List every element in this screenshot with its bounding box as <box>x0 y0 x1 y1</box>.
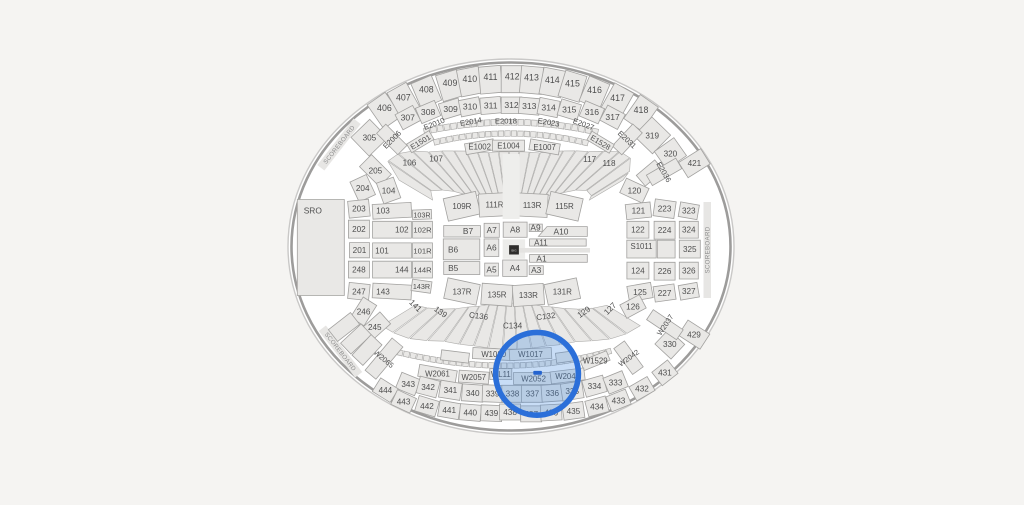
svg-text:435: 435 <box>567 407 581 416</box>
svg-text:103: 103 <box>376 207 390 216</box>
svg-text:101R: 101R <box>413 246 432 255</box>
svg-text:A9: A9 <box>530 223 541 233</box>
svg-text:A7: A7 <box>487 225 498 235</box>
svg-text:333: 333 <box>609 378 623 387</box>
svg-text:248: 248 <box>352 266 366 275</box>
svg-text:201: 201 <box>353 246 367 255</box>
svg-text:102: 102 <box>395 226 409 235</box>
svg-text:415: 415 <box>565 79 580 89</box>
svg-text:117: 117 <box>583 155 596 164</box>
svg-text:SCOREBOARD: SCOREBOARD <box>704 226 711 273</box>
svg-text:305: 305 <box>363 134 377 143</box>
svg-text:W2061: W2061 <box>425 370 450 379</box>
svg-text:A3: A3 <box>531 265 542 275</box>
svg-text:444: 444 <box>379 386 393 395</box>
svg-text:103R: 103R <box>413 210 430 219</box>
svg-text:A8: A8 <box>510 225 521 235</box>
svg-text:421: 421 <box>688 159 702 168</box>
svg-text:413: 413 <box>524 72 539 82</box>
svg-text:143R: 143R <box>413 282 430 291</box>
svg-text:441: 441 <box>442 406 456 415</box>
svg-text:440: 440 <box>463 408 477 417</box>
svg-text:202: 202 <box>352 225 366 234</box>
svg-text:C134: C134 <box>503 321 523 330</box>
svg-text:143: 143 <box>376 287 390 296</box>
svg-text:308: 308 <box>421 107 436 117</box>
svg-text:144R: 144R <box>413 266 432 275</box>
svg-text:131R: 131R <box>553 287 572 296</box>
svg-text:125: 125 <box>633 288 647 297</box>
svg-text:411: 411 <box>483 72 497 82</box>
svg-text:111R: 111R <box>486 201 504 210</box>
svg-text:A4: A4 <box>510 263 521 273</box>
svg-text:102R: 102R <box>413 226 432 235</box>
svg-text:245: 245 <box>368 323 382 332</box>
svg-text:439: 439 <box>485 409 499 418</box>
svg-text:204: 204 <box>356 184 370 193</box>
svg-text:203: 203 <box>352 205 366 214</box>
svg-text:S1011: S1011 <box>631 242 653 251</box>
svg-text:118: 118 <box>602 159 615 168</box>
svg-text:E1004: E1004 <box>497 142 520 151</box>
svg-text:137R: 137R <box>452 287 471 296</box>
svg-text:320: 320 <box>664 150 678 159</box>
svg-text:310: 310 <box>463 102 478 112</box>
svg-text:W1529: W1529 <box>583 357 608 366</box>
svg-text:205: 205 <box>369 166 383 175</box>
svg-text:408: 408 <box>419 84 434 94</box>
svg-text:309: 309 <box>443 104 458 114</box>
svg-text:311: 311 <box>484 100 498 110</box>
svg-text:135R: 135R <box>487 291 506 300</box>
svg-text:A6: A6 <box>486 243 497 253</box>
svg-text:107: 107 <box>429 155 443 164</box>
svg-text:412: 412 <box>505 72 520 82</box>
svg-text:432: 432 <box>635 385 649 394</box>
svg-text:A11: A11 <box>534 238 548 247</box>
svg-text:314: 314 <box>541 102 556 112</box>
svg-text:431: 431 <box>658 369 672 378</box>
svg-text:410: 410 <box>462 74 477 84</box>
svg-text:342: 342 <box>421 383 435 392</box>
svg-text:325: 325 <box>683 245 697 254</box>
svg-text:334: 334 <box>588 382 602 391</box>
svg-text:223: 223 <box>658 205 672 214</box>
svg-text:104: 104 <box>382 186 396 195</box>
svg-text:133R: 133R <box>519 291 538 300</box>
svg-text:120: 120 <box>628 187 642 196</box>
svg-text:144: 144 <box>395 266 409 275</box>
svg-text:343: 343 <box>401 380 415 389</box>
svg-text:106: 106 <box>403 158 417 167</box>
svg-text:E2018: E2018 <box>495 117 517 126</box>
svg-text:324: 324 <box>682 226 696 235</box>
svg-text:407: 407 <box>396 92 411 102</box>
svg-text:406: 406 <box>377 103 392 113</box>
svg-text:115R: 115R <box>555 202 574 211</box>
svg-text:124: 124 <box>631 267 645 276</box>
svg-text:443: 443 <box>397 397 411 406</box>
svg-text:126: 126 <box>626 302 640 311</box>
svg-text:409: 409 <box>443 78 458 88</box>
svg-text:226: 226 <box>658 267 672 276</box>
svg-text:327: 327 <box>682 287 696 296</box>
svg-text:313: 313 <box>522 101 537 111</box>
svg-text:312: 312 <box>504 100 519 110</box>
svg-text:E1002: E1002 <box>468 143 491 152</box>
svg-text:E1007: E1007 <box>533 143 556 152</box>
svg-text:227: 227 <box>658 289 672 298</box>
svg-text:BIG: BIG <box>511 249 517 253</box>
svg-text:307: 307 <box>401 113 416 123</box>
svg-text:101: 101 <box>375 246 389 255</box>
svg-text:246: 246 <box>357 307 371 316</box>
svg-text:330: 330 <box>663 340 677 349</box>
svg-text:A1: A1 <box>536 253 547 263</box>
svg-text:W2057: W2057 <box>461 373 486 382</box>
svg-text:340: 340 <box>466 389 480 398</box>
svg-text:416: 416 <box>587 85 602 95</box>
svg-text:341: 341 <box>444 386 458 395</box>
svg-text:SRO: SRO <box>304 205 323 215</box>
svg-text:A5: A5 <box>486 265 497 275</box>
svg-text:121: 121 <box>632 207 646 216</box>
svg-text:414: 414 <box>545 75 560 85</box>
svg-text:B6: B6 <box>448 244 459 254</box>
svg-text:429: 429 <box>687 331 701 340</box>
svg-text:442: 442 <box>420 402 434 411</box>
svg-text:109R: 109R <box>452 202 471 211</box>
svg-text:316: 316 <box>585 107 600 117</box>
svg-text:A10: A10 <box>554 226 569 236</box>
svg-text:224: 224 <box>658 226 672 235</box>
svg-text:113R: 113R <box>523 201 542 210</box>
svg-text:433: 433 <box>612 396 626 405</box>
svg-text:315: 315 <box>562 105 577 115</box>
svg-text:122: 122 <box>631 226 645 235</box>
svg-text:417: 417 <box>610 93 625 103</box>
svg-text:326: 326 <box>682 267 696 276</box>
svg-text:B5: B5 <box>448 263 459 273</box>
svg-text:317: 317 <box>605 112 620 122</box>
svg-text:418: 418 <box>634 105 649 115</box>
svg-text:434: 434 <box>590 402 604 411</box>
svg-text:319: 319 <box>645 131 659 140</box>
svg-text:323: 323 <box>682 207 696 216</box>
svg-text:B7: B7 <box>463 226 474 236</box>
svg-text:247: 247 <box>352 287 366 296</box>
